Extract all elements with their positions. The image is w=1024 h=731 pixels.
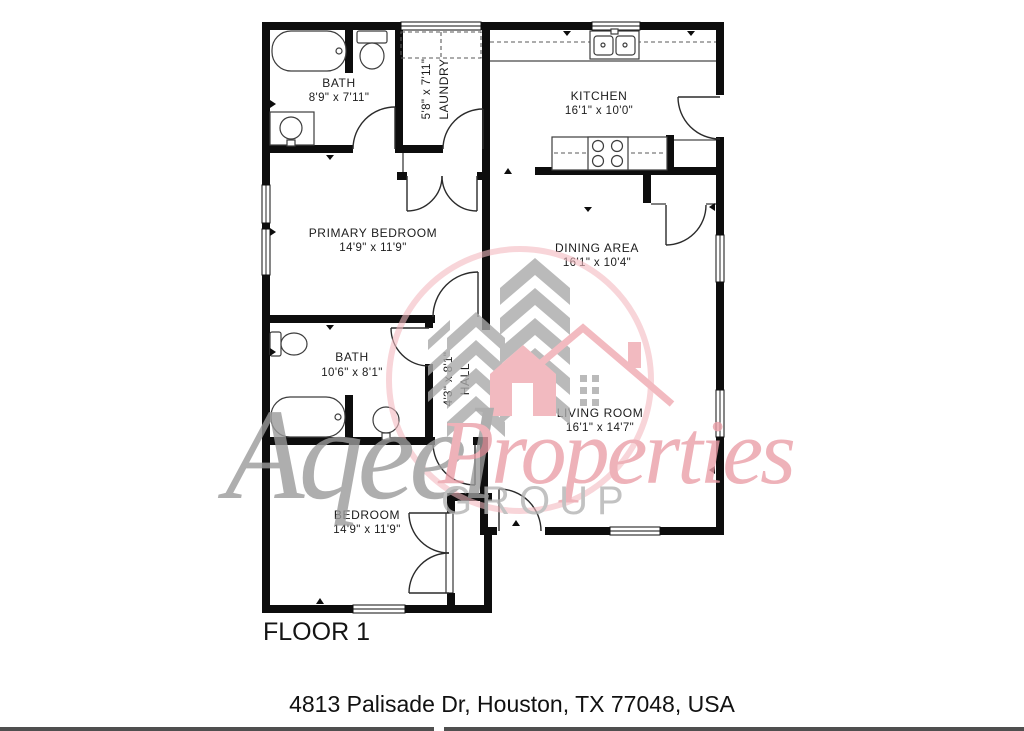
room-label-primary-bedroom: PRIMARY BEDROOM 14'9" x 11'9" xyxy=(309,226,438,254)
wall-segment xyxy=(262,315,435,323)
washer-dryer-icon xyxy=(401,32,481,58)
room-dims: 5'8" x 7'11" xyxy=(421,59,433,120)
door-dining-closet xyxy=(666,205,706,245)
window xyxy=(353,605,405,613)
room-name: PRIMARY BEDROOM xyxy=(309,226,438,240)
window xyxy=(262,185,270,223)
kitchen-island-stove-icon xyxy=(552,137,667,170)
wall-segment xyxy=(483,145,490,153)
wall-segment xyxy=(425,323,433,328)
wall-segment xyxy=(643,175,651,203)
wall-segment xyxy=(395,22,403,153)
room-label-bath-2: BATH 10'6" x 8'1" xyxy=(321,350,382,379)
toilet-icon xyxy=(270,332,307,356)
room-dims: 14'9" x 11'9" xyxy=(339,242,406,254)
room-name: KITCHEN xyxy=(571,89,628,103)
window xyxy=(610,527,660,535)
room-name: LAUNDRY xyxy=(437,58,451,119)
room-label-bath-1: BATH 8'9" x 7'11" xyxy=(309,76,370,104)
brand-subtext: GROUP xyxy=(441,479,633,523)
door-primary-closet-double xyxy=(407,176,477,211)
wall-segment xyxy=(397,172,407,180)
wall-segment xyxy=(484,527,492,613)
room-dims: 16'1" x 10'0" xyxy=(565,105,633,117)
wall-segment xyxy=(447,593,455,607)
door-kitchen-exterior xyxy=(678,97,720,139)
room-dims: 8'9" x 7'11" xyxy=(309,92,370,104)
wall-segment xyxy=(262,22,724,30)
wall-segment xyxy=(477,172,485,180)
window xyxy=(716,235,724,282)
bottom-edge-bar xyxy=(0,727,1024,731)
floor-plan-page: BATH 8'9" x 7'11" LAUNDRY 5'8" x 7'11" K… xyxy=(0,0,1024,731)
room-dims: 10'6" x 8'1" xyxy=(321,367,382,379)
bathtub-icon xyxy=(272,31,346,71)
kitchen-counter-icon xyxy=(490,29,716,61)
room-label-kitchen: KITCHEN 16'1" x 10'0" xyxy=(565,89,633,117)
watermark: Aqeel Properties GROUP xyxy=(217,249,794,527)
room-name: BATH xyxy=(335,350,369,364)
floor-plan-canvas: BATH 8'9" x 7'11" LAUNDRY 5'8" x 7'11" K… xyxy=(0,0,1024,731)
toilet-icon xyxy=(357,31,387,69)
address-caption: 4813 Palisade Dr, Houston, TX 77048, USA xyxy=(289,691,735,717)
door-bath-1 xyxy=(353,107,395,149)
floor-label: FLOOR 1 xyxy=(263,618,370,646)
wall-segment xyxy=(716,22,724,95)
sink-vanity-icon xyxy=(270,112,314,146)
room-label-laundry: LAUNDRY 5'8" x 7'11" xyxy=(421,58,451,119)
room-name: DINING AREA xyxy=(555,241,639,255)
window xyxy=(401,22,481,30)
window xyxy=(262,229,270,275)
room-name: BATH xyxy=(322,76,356,90)
wall-segment xyxy=(262,145,353,153)
